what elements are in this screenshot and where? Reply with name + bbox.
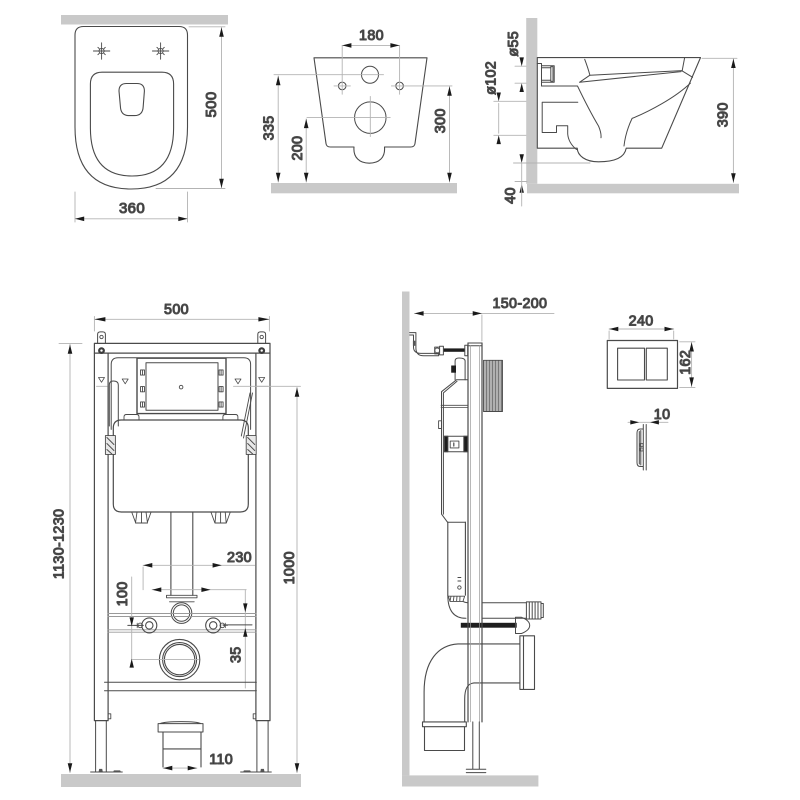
svg-text:ø55: ø55 bbox=[506, 31, 522, 57]
svg-text:150-200: 150-200 bbox=[492, 296, 547, 312]
svg-text:110: 110 bbox=[209, 752, 233, 768]
svg-text:390: 390 bbox=[715, 102, 731, 127]
svg-text:240: 240 bbox=[629, 314, 654, 330]
svg-text:1130-1230: 1130-1230 bbox=[52, 509, 68, 579]
svg-text:40: 40 bbox=[503, 187, 519, 204]
svg-text:10: 10 bbox=[654, 407, 671, 423]
svg-text:162: 162 bbox=[678, 350, 694, 375]
svg-text:180: 180 bbox=[359, 28, 384, 44]
svg-text:300: 300 bbox=[433, 108, 449, 133]
svg-text:360: 360 bbox=[119, 200, 145, 217]
svg-text:500: 500 bbox=[203, 91, 220, 117]
svg-text:335: 335 bbox=[262, 115, 278, 140]
svg-text:500: 500 bbox=[164, 302, 189, 318]
svg-text:ø102: ø102 bbox=[484, 61, 500, 95]
svg-text:200: 200 bbox=[290, 136, 306, 161]
svg-text:1000: 1000 bbox=[282, 551, 298, 584]
svg-text:230: 230 bbox=[227, 550, 252, 566]
svg-text:35: 35 bbox=[228, 646, 244, 663]
svg-text:100: 100 bbox=[115, 581, 131, 606]
